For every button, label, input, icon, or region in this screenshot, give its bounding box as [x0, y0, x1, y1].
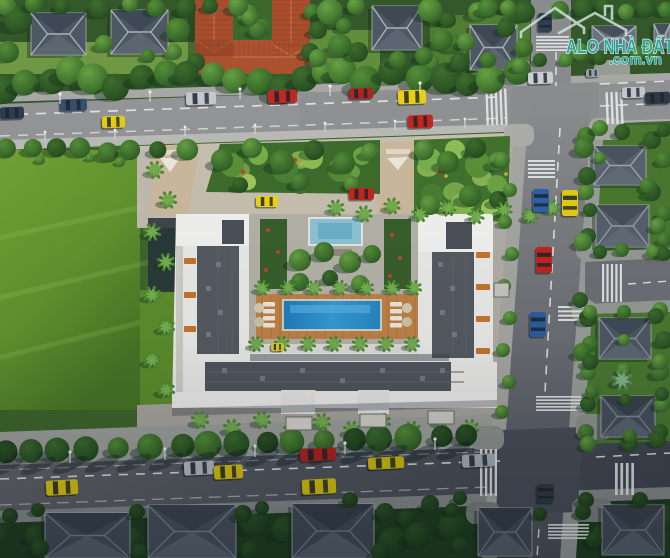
svg-text:.com.vn: .com.vn	[609, 51, 662, 67]
